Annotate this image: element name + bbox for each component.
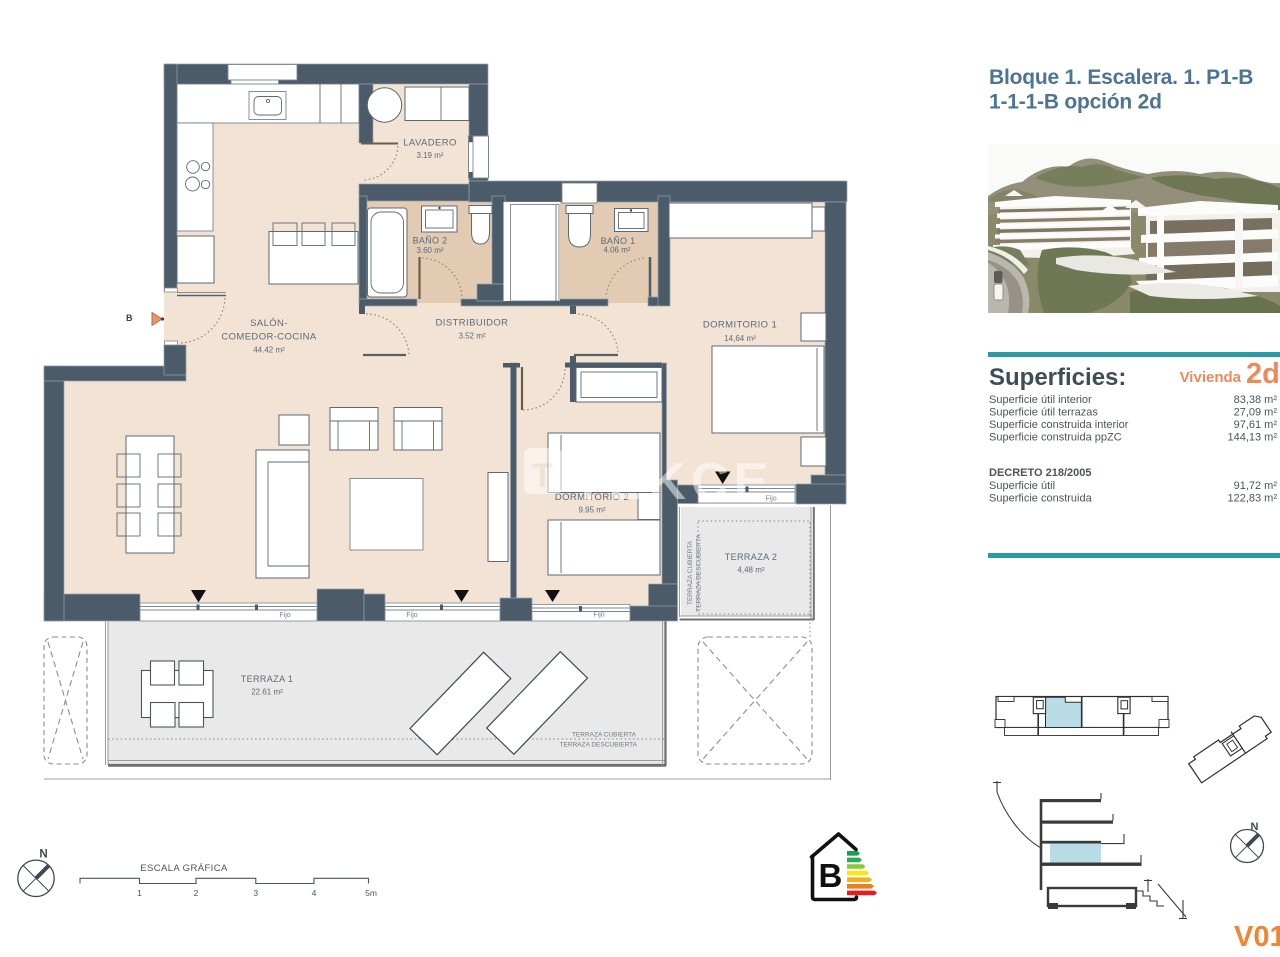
svg-text:4.06 m²: 4.06 m² — [603, 246, 630, 255]
svg-text:4: 4 — [312, 888, 317, 898]
svg-text:144,13 m²: 144,13 m² — [1227, 432, 1277, 444]
svg-text:DORMITORIO 1: DORMITORIO 1 — [703, 320, 777, 331]
svg-text:N: N — [39, 849, 47, 861]
svg-text:97,61 m²: 97,61 m² — [1234, 419, 1278, 431]
svg-text:2: 2 — [194, 888, 199, 898]
svg-text:T: T — [532, 457, 553, 495]
svg-text:44.42 m²: 44.42 m² — [253, 346, 285, 355]
svg-text:27,09 m²: 27,09 m² — [1234, 407, 1278, 419]
svg-text:DECRETO 218/2005: DECRETO 218/2005 — [989, 467, 1092, 479]
svg-text:Superficie construida ppZC: Superficie construida ppZC — [989, 432, 1122, 444]
svg-text:TERRAZA DESCUBIERTA: TERRAZA DESCUBIERTA — [560, 742, 638, 749]
svg-text:Bloque 1. Escalera. 1. P1-B: Bloque 1. Escalera. 1. P1-B — [989, 66, 1253, 89]
svg-text:Fijo: Fijo — [406, 612, 417, 619]
svg-text:B: B — [819, 857, 843, 894]
svg-text:B: B — [126, 313, 133, 323]
svg-text:122,83 m²: 122,83 m² — [1227, 493, 1277, 505]
svg-text:14,64 m²: 14,64 m² — [724, 334, 756, 343]
svg-text:Superficie construida interior: Superficie construida interior — [989, 419, 1129, 431]
svg-text:ESCALA GRÁFICA: ESCALA GRÁFICA — [140, 863, 228, 874]
svg-text:LAVADERO: LAVADERO — [403, 138, 457, 149]
svg-text:TERRAZA CUBIERTA: TERRAZA CUBIERTA — [572, 732, 637, 739]
svg-text:83,38 m²: 83,38 m² — [1234, 394, 1278, 406]
svg-text:Superficie útil terrazas: Superficie útil terrazas — [989, 407, 1098, 419]
svg-text:3.19 m²: 3.19 m² — [416, 151, 443, 160]
svg-text:3: 3 — [253, 888, 258, 898]
svg-text:SALÓN-: SALÓN- — [250, 318, 288, 329]
svg-text:Fijo: Fijo — [593, 612, 604, 619]
svg-text:COMEDOR-COCINA: COMEDOR-COCINA — [221, 332, 317, 343]
svg-text:TERRAZA 2: TERRAZA 2 — [725, 552, 778, 562]
svg-text:BAÑO 1: BAÑO 1 — [601, 236, 636, 246]
svg-text:TERRAZA DESCUBIERTA: TERRAZA DESCUBIERTA — [696, 534, 703, 612]
svg-text:Superficie construida: Superficie construida — [989, 493, 1093, 505]
svg-text:Superficie útil interior: Superficie útil interior — [989, 394, 1092, 406]
svg-text:1-1-1-B opción 2d: 1-1-1-B opción 2d — [989, 91, 1162, 114]
svg-text:Superficies:: Superficies: — [989, 364, 1126, 391]
svg-text:1: 1 — [137, 888, 142, 898]
svg-text:Vivienda: Vivienda — [1180, 369, 1242, 386]
svg-text:Fijo: Fijo — [279, 612, 290, 619]
svg-text:BAÑO 2: BAÑO 2 — [413, 236, 448, 246]
svg-text:3.60 m²: 3.60 m² — [416, 246, 443, 255]
svg-text:3.52 m²: 3.52 m² — [458, 332, 485, 341]
svg-text:91,72 m²: 91,72 m² — [1234, 480, 1278, 492]
svg-text:Superficie útil: Superficie útil — [989, 480, 1055, 492]
svg-text:TEKCE: TEKCE — [572, 453, 773, 511]
svg-text:TERRAZA 1: TERRAZA 1 — [241, 674, 294, 684]
svg-text:DISTRIBUIDOR: DISTRIBUIDOR — [436, 318, 509, 329]
svg-text:V01: V01 — [1234, 921, 1280, 953]
svg-text:TERRAZA CUBIERTA: TERRAZA CUBIERTA — [687, 540, 694, 605]
svg-text:5m: 5m — [365, 888, 377, 898]
svg-text:4,48 m²: 4,48 m² — [737, 566, 764, 575]
svg-text:22.61 m²: 22.61 m² — [251, 688, 283, 697]
svg-text:2d: 2d — [1246, 358, 1280, 390]
